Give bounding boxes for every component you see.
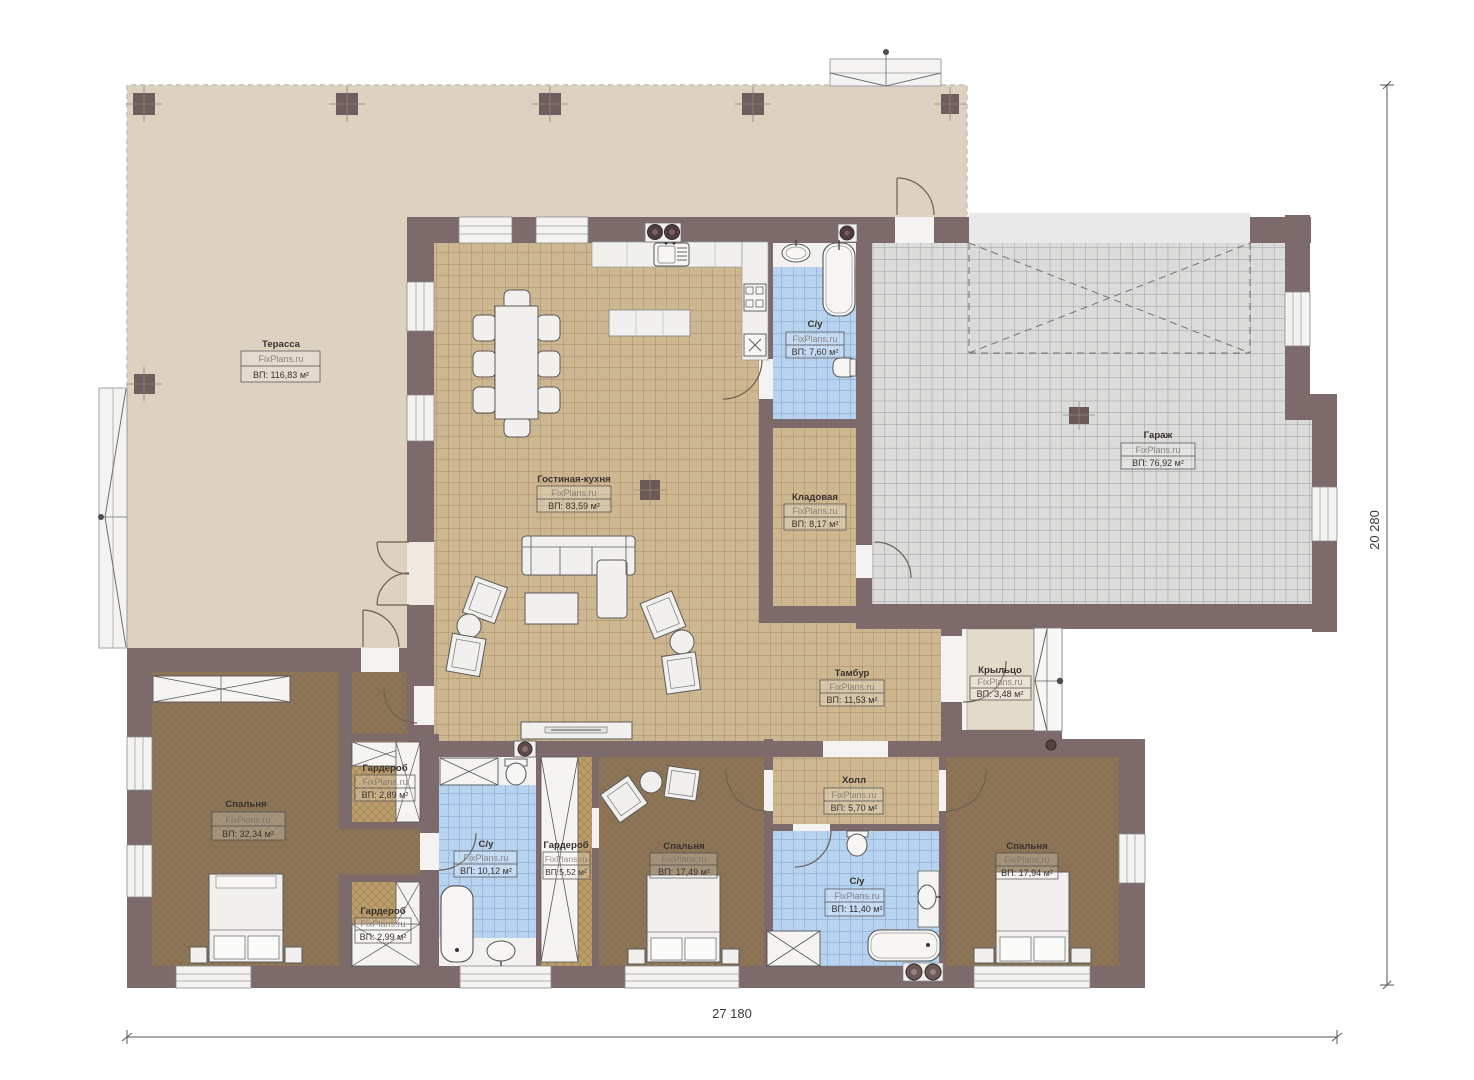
svg-text:ВП: 17,94 м²: ВП: 17,94 м² [1001,868,1053,878]
svg-text:ВП: 32,34 м²: ВП: 32,34 м² [222,829,274,839]
svg-text:FixPlans.ru: FixPlans.ru [545,854,588,864]
svg-text:С/у: С/у [850,876,866,887]
svg-text:ВП: 116,83 м²: ВП: 116,83 м² [253,370,309,380]
svg-text:ВП: 83,59 м²: ВП: 83,59 м² [548,501,600,511]
svg-text:ВП: 10,12 м²: ВП: 10,12 м² [460,866,512,876]
svg-text:FixPlans.ru: FixPlans.ru [463,853,508,863]
svg-text:Крыльцо: Крыльцо [978,665,1022,676]
svg-text:20 280: 20 280 [1367,510,1382,550]
svg-text:Тамбур: Тамбур [835,668,870,679]
svg-text:Гардероб: Гардероб [543,840,588,851]
svg-text:С/у: С/у [808,319,824,330]
svg-text:FixPlans.ru: FixPlans.ru [1135,445,1180,455]
svg-text:Гараж: Гараж [1144,430,1173,441]
svg-text:FixPlans.ru: FixPlans.ru [360,919,405,929]
svg-text:FixPlans.ru: FixPlans.ru [661,854,706,864]
svg-text:FixPlans.ru: FixPlans.ru [551,488,596,498]
svg-text:FixPlans.ru: FixPlans.ru [792,334,837,344]
svg-text:Холл: Холл [842,775,866,786]
svg-text:ВП: 76,92 м²: ВП: 76,92 м² [1132,458,1184,468]
svg-text:ВП:5,52 м²: ВП:5,52 м² [545,867,587,877]
svg-text:С/у: С/у [479,839,495,850]
svg-text:Спальня: Спальня [1006,841,1047,852]
svg-text:Гардероб: Гардероб [362,763,407,774]
svg-text:ВП: 3,48 м²: ВП: 3,48 м² [977,689,1024,699]
svg-text:ВП: 11,40 м²: ВП: 11,40 м² [831,904,882,914]
svg-text:Спальня: Спальня [225,799,266,810]
svg-text:Кладовая: Кладовая [792,492,838,503]
svg-text:FixPlans.ru: FixPlans.ru [1004,855,1049,865]
svg-text:Терасса: Терасса [262,339,301,350]
svg-text:27 180: 27 180 [712,1006,752,1021]
svg-text:ВП: 11,53 м²: ВП: 11,53 м² [826,695,877,705]
svg-text:FixPlans.ru: FixPlans.ru [977,677,1022,687]
svg-text:Гостиная-кухня: Гостиная-кухня [537,474,611,485]
svg-text:ВП: 7,60 м²: ВП: 7,60 м² [792,347,839,357]
svg-text:FixPlans.ru: FixPlans.ru [792,506,837,516]
svg-text:ВП: 2,89 м²: ВП: 2,89 м² [362,790,409,800]
svg-text:Гардероб: Гардероб [360,906,405,917]
svg-text:ВП: 2,99 м²: ВП: 2,99 м² [360,932,407,942]
svg-text:ВП: 17,49 м²: ВП: 17,49 м² [658,867,710,877]
svg-text:Спальня: Спальня [663,841,704,852]
svg-text:ВП: 5,70 м²: ВП: 5,70 м² [831,803,878,813]
svg-text:FixPlans.ru: FixPlans.ru [225,815,270,825]
svg-text:ВП: 8,17 м²: ВП: 8,17 м² [792,519,839,529]
svg-text:FixPlans.ru: FixPlans.ru [258,354,303,364]
svg-text:FixPlans.ru: FixPlans.ru [834,891,879,901]
svg-text:FixPlans.ru: FixPlans.ru [831,790,876,800]
svg-text:FixPlans.ru: FixPlans.ru [829,682,874,692]
svg-text:FixPlans.ru: FixPlans.ru [362,777,407,787]
